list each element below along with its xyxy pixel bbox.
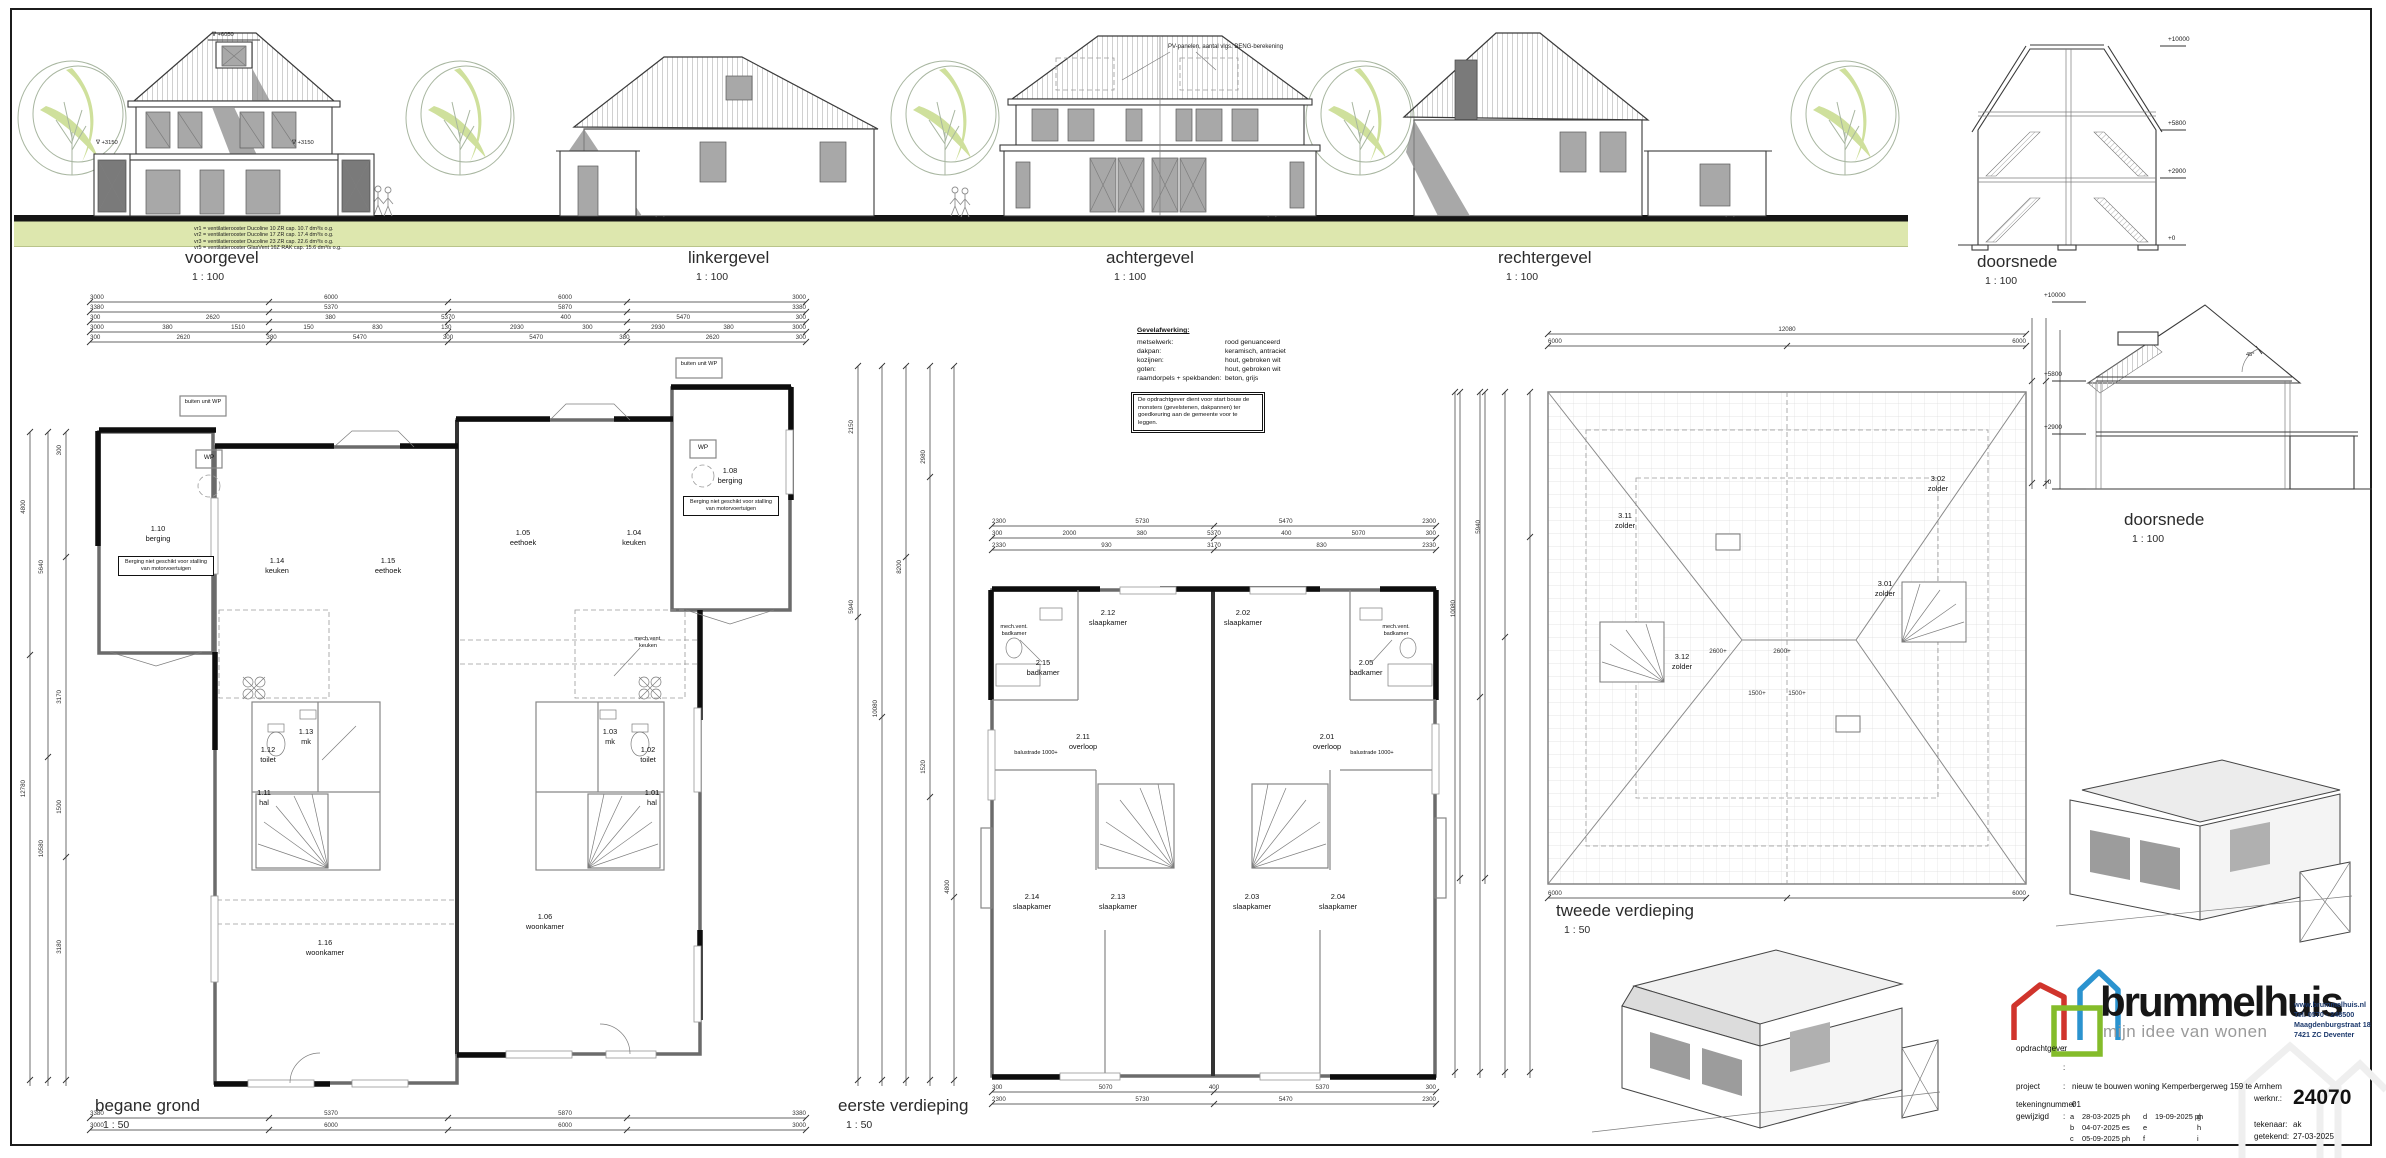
revision-key: d: [2143, 1112, 2147, 1121]
wp-label: WP: [204, 454, 214, 462]
company-contact: www.brummelhuis.nl Tel. 0570 - 248500 Ma…: [2294, 1000, 2371, 1040]
level-mark: +2900: [2044, 424, 2062, 431]
level-mark: ∇ +6050: [212, 32, 234, 38]
colon: :: [2063, 1063, 2065, 1072]
room-label: 2.02slaapkamer: [1224, 608, 1262, 627]
room-label: 2.11overloop: [1069, 732, 1097, 751]
doorsnede-mid-drawing: [2029, 302, 2372, 489]
dim-value: 5640: [38, 560, 45, 574]
rechtergevel-scale: 1 : 100: [1506, 271, 1538, 283]
room-label: 3.02zolder: [1928, 474, 1948, 493]
dim-value: 10080: [872, 700, 879, 717]
tree-icon: [1306, 61, 1414, 175]
dim-row: 12080: [1548, 326, 2026, 333]
level-mark: ∇ +3150: [96, 140, 118, 146]
height-mark: 2600+: [1709, 648, 1726, 655]
dim-row: 60006000: [1548, 890, 2026, 897]
dim-value: 2150: [848, 420, 855, 434]
revision-key: g: [2197, 1112, 2201, 1121]
achtergevel-scale: 1 : 100: [1114, 271, 1146, 283]
dim-value: 3180: [56, 940, 63, 954]
dim-value: 12780: [20, 780, 27, 797]
voorgevel-scale: 1 : 100: [192, 271, 224, 283]
rechtergevel-drawing: [1404, 33, 1772, 216]
room-label: 1.12toilet: [260, 745, 276, 764]
dim-row: 233093031708302330: [992, 542, 1436, 549]
revision-key: h: [2197, 1123, 2201, 1132]
level-mark: +2900: [2168, 168, 2186, 175]
doorsnede-top-scale: 1 : 100: [1985, 275, 2017, 287]
voorgevel-drawing: [94, 33, 374, 216]
revision-value: 28-03-2025 ph: [2082, 1112, 2130, 1121]
getekend-value: 27-03-2025: [2293, 1132, 2334, 1141]
begane-grond-drawing: [27, 299, 957, 1133]
drawing-sheet: voorgevel 1 : 100 linkergevel 1 : 100 ac…: [0, 0, 2386, 1158]
colon: :: [2063, 1082, 2065, 1091]
room-label: 1.14keuken: [265, 556, 289, 575]
room-label: 1.16woonkamer: [306, 938, 344, 957]
achtergevel-drawing: [1000, 36, 1320, 216]
perspective-house-a: [1592, 950, 1940, 1132]
dim-value: 5940: [848, 600, 855, 614]
buiten-unit-wp-label: buiten unit WP: [678, 361, 720, 368]
linkergevel-scale: 1 : 100: [696, 271, 728, 283]
tree-icon: [406, 61, 514, 175]
colon: :: [2063, 1112, 2065, 1121]
revision-value: 05-09-2025 ph: [2082, 1134, 2130, 1143]
dim-row: 2300573054702300: [992, 1096, 1436, 1103]
pv-note: PV-panelen, aantal vlgs. BENG-berekening: [1168, 44, 1283, 50]
doorsnede-top-title: doorsnede: [1977, 252, 2057, 272]
dim-value: 4800: [944, 880, 951, 894]
room-label: 1.11hal: [257, 788, 271, 807]
materials-legend: Gevelafwerking: metselwerk:rood genuance…: [1137, 327, 1286, 384]
height-mark: 1500+: [1788, 690, 1805, 697]
level-mark: +5800: [2168, 120, 2186, 127]
gewijzigd-label: gewijzigd: [2016, 1112, 2049, 1121]
tekeningnummer-value: 01: [2072, 1100, 2081, 1109]
mech-vent-note: mech.vent. badkamer: [994, 624, 1034, 637]
doorsnede-mid-scale: 1 : 100: [2132, 533, 2164, 545]
room-label: 2.15badkamer: [1027, 658, 1060, 677]
colon: :: [2063, 1100, 2065, 1109]
level-mark: +10000: [2044, 292, 2066, 299]
dim-row: 2300573054702300: [992, 518, 1436, 525]
dim-row: 3000600060003000: [90, 294, 806, 301]
revision-value: 04-07-2025 es: [2082, 1123, 2130, 1132]
revision-key: a: [2070, 1112, 2074, 1121]
getekend-label: getekend:: [2254, 1132, 2289, 1141]
dim-value: 1500: [56, 800, 63, 814]
project-value: nieuw te bouwen woning Kemperbergerweg 1…: [2072, 1082, 2282, 1091]
tweede-verdieping-title: tweede verdieping: [1556, 901, 1694, 921]
dim-value: 8200: [896, 560, 903, 574]
mech-vent-note: mech.vent. keuken: [628, 636, 668, 649]
roof-angle: 45°: [2246, 352, 2254, 358]
balustrade-note: balustrade 1000+: [1014, 750, 1057, 757]
dim-row: 3002620380547030054703802620300: [90, 334, 806, 341]
tweede-verdieping-scale: 1 : 50: [1564, 924, 1590, 936]
revision-key: c: [2070, 1134, 2074, 1143]
revision-key: b: [2070, 1123, 2074, 1132]
colon: :: [2063, 1044, 2065, 1053]
eerste-verdieping-drawing: [981, 389, 1533, 1107]
balustrade-note: balustrade 1000+: [1350, 750, 1393, 757]
project-label: project: [2016, 1082, 2040, 1091]
drawing-layer: [0, 0, 2386, 1158]
room-label: 2.05badkamer: [1350, 658, 1383, 677]
achtergevel-title: achtergevel: [1106, 248, 1194, 268]
room-label: 1.13mk: [299, 727, 313, 746]
revision-key: i: [2197, 1134, 2199, 1143]
ventilation-legend: vr1 = ventilatierooster Ducoline 10 ZR c…: [194, 226, 342, 252]
doorsnede-mid-title: doorsnede: [2124, 510, 2204, 530]
room-label: 2.01overloop: [1313, 732, 1341, 751]
room-label: 3.12zolder: [1672, 652, 1692, 671]
level-mark: +0: [2168, 235, 2175, 242]
tree-icon: [1791, 61, 1899, 175]
buiten-unit-wp-label: buiten unit WP: [182, 399, 224, 406]
room-label: 1.05eethoek: [510, 528, 536, 547]
dim-row: 3000600060003000: [90, 1122, 806, 1129]
room-label: 1.10berging: [146, 524, 171, 543]
tekeningnummer-label: tekeningnummer: [2016, 1100, 2076, 1109]
room-label: 1.08berging: [718, 466, 743, 485]
dim-row: 60006000: [1548, 338, 2026, 345]
linkergevel-title: linkergevel: [688, 248, 769, 268]
level-mark: +5800: [2044, 371, 2062, 378]
room-label: 2.13slaapkamer: [1099, 892, 1137, 911]
berging-note: Berging niet geschikt voor stalling van …: [683, 496, 779, 516]
doorsnede-top-drawing: [1958, 45, 2186, 250]
dim-value: 4800: [20, 500, 27, 514]
room-label: 2.14slaapkamer: [1013, 892, 1051, 911]
room-label: 2.03slaapkamer: [1233, 892, 1271, 911]
room-label: 2.04slaapkamer: [1319, 892, 1357, 911]
dim-row: 300200038053704005070300: [992, 530, 1436, 537]
room-label: 1.03mk: [603, 727, 617, 746]
werknr-value: 24070: [2293, 1086, 2351, 1110]
dim-row: 3380537058703380: [90, 1110, 806, 1117]
revision-key: f: [2143, 1134, 2145, 1143]
opdrachtgever-label: opdrachtgever: [2016, 1044, 2067, 1053]
room-label: 1.04keuken: [622, 528, 646, 547]
dim-value: 5940: [1475, 520, 1482, 534]
dim-value: 3170: [56, 690, 63, 704]
perspective-house-b: [2056, 760, 2352, 942]
dim-row: 30050704005370300: [992, 1084, 1436, 1091]
linkergevel-drawing: [556, 57, 878, 216]
room-label: 1.02toilet: [640, 745, 656, 764]
werknr-label: werknr.:: [2254, 1094, 2282, 1103]
level-mark: +0: [2044, 479, 2051, 486]
tree-icon: [891, 61, 999, 175]
eerste-verdieping-scale: 1 : 50: [846, 1119, 872, 1131]
height-mark: 2600+: [1773, 648, 1790, 655]
room-label: 1.01hal: [645, 788, 659, 807]
room-label: 2.12slaapkamer: [1089, 608, 1127, 627]
dim-row: 30003801510150830130293030029303803000: [90, 324, 806, 331]
height-mark: 1500+: [1748, 690, 1765, 697]
rechtergevel-title: rechtergevel: [1498, 248, 1592, 268]
dim-row: 3380537058703380: [90, 304, 806, 311]
wp-label: WP: [698, 444, 708, 452]
revision-value: 19-09-2025 ph: [2155, 1112, 2203, 1121]
dim-value: 10080: [1450, 600, 1457, 617]
approval-note: De opdrachtgever dient voor start bouw d…: [1133, 394, 1263, 431]
tekenaar-label: tekenaar:: [2254, 1120, 2287, 1129]
dim-row: 300262038053704005470300: [90, 314, 806, 321]
mech-vent-note: mech.vent. badkamer: [1376, 624, 1416, 637]
dim-value: 2980: [920, 450, 927, 464]
room-label: 3.11zolder: [1615, 511, 1635, 530]
tekenaar-value: ak: [2293, 1120, 2301, 1129]
level-mark: +10000: [2168, 36, 2190, 43]
dim-value: 10580: [38, 840, 45, 857]
berging-note: Berging niet geschikt voor stalling van …: [118, 556, 214, 576]
level-mark: ∇ +3150: [292, 140, 314, 146]
revision-key: e: [2143, 1123, 2147, 1132]
brand-tagline: mijn idee van wonen: [2103, 1022, 2267, 1042]
dim-value: 1520: [920, 760, 927, 774]
dim-value: 300: [56, 445, 63, 455]
eerste-verdieping-title: eerste verdieping: [838, 1096, 968, 1116]
room-label: 3.01zolder: [1875, 579, 1895, 598]
tweede-verdieping-drawing: [1457, 331, 2029, 901]
room-label: 1.15eethoek: [375, 556, 401, 575]
room-label: 1.06woonkamer: [526, 912, 564, 931]
